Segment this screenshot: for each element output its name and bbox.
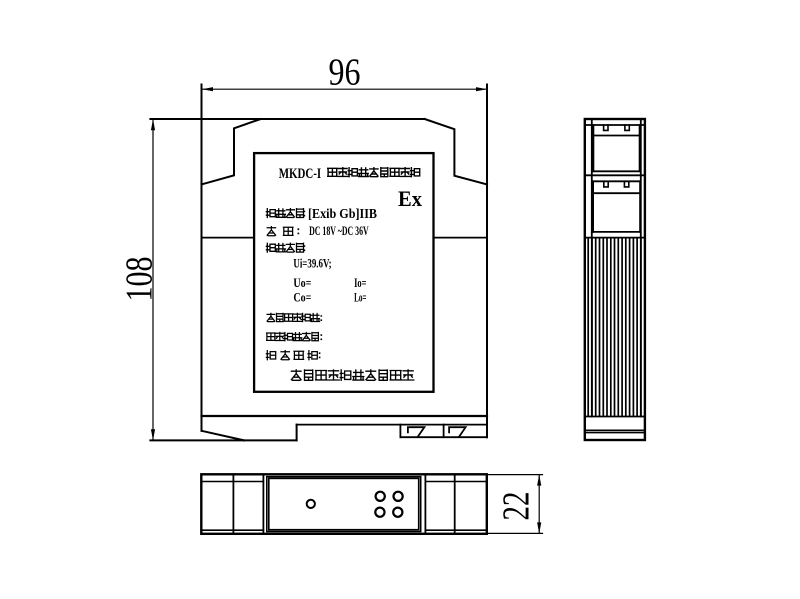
svg-text:108: 108: [119, 257, 161, 302]
svg-text:Io=: Io=: [354, 276, 366, 290]
svg-text:96: 96: [329, 52, 361, 94]
svg-text:Co=: Co=: [293, 290, 311, 304]
svg-text:22: 22: [496, 492, 538, 521]
svg-text:Ui=39.6V;: Ui=39.6V;: [293, 257, 331, 271]
svg-text:DC 18V ~DC 36V: DC 18V ~DC 36V: [309, 224, 369, 238]
svg-text:Lo=: Lo=: [354, 290, 366, 304]
svg-text:Uo=: Uo=: [293, 276, 311, 290]
svg-text:MKDC-I: MKDC-I: [279, 166, 322, 182]
svg-text:[Exib Gb]IIB: [Exib Gb]IIB: [308, 207, 377, 222]
svg-text:Ex: Ex: [398, 186, 423, 211]
